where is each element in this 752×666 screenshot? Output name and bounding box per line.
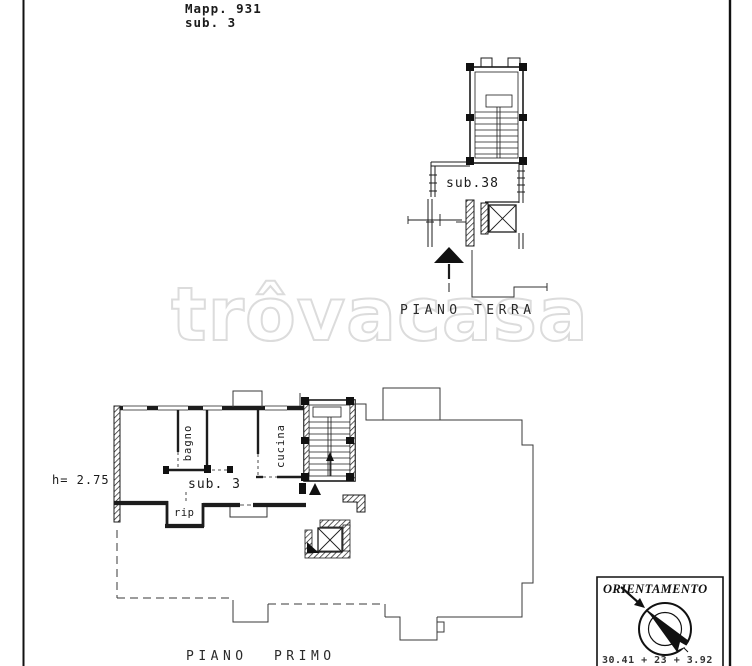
- first-floor-unit-label: sub. 3: [188, 477, 241, 492]
- map-reference-label: Mapp. 931: [185, 1, 262, 16]
- ground-floor-unit-label: sub.38: [446, 176, 499, 191]
- sub-reference-label: sub. 3: [185, 15, 236, 30]
- floor-plan-sheet: trôvacasa: [0, 0, 752, 666]
- room-label-storage: rip: [174, 507, 194, 519]
- room-label-kitchen: cucina: [275, 424, 287, 468]
- label-layer: Mapp. 931 sub. 3 sub.38 PIANO TERRA h= 2…: [0, 0, 752, 666]
- footnote-fragment: 30.41 + 23 + 3.92: [602, 655, 722, 666]
- ceiling-height-note: h= 2.75: [52, 473, 110, 487]
- orientation-title: ORIENTAMENTO: [603, 582, 708, 597]
- first-floor-caption: PIANO PRIMO: [186, 649, 336, 664]
- room-label-bathroom: bagno: [182, 425, 194, 462]
- ground-floor-caption: PIANO TERRA: [400, 303, 536, 318]
